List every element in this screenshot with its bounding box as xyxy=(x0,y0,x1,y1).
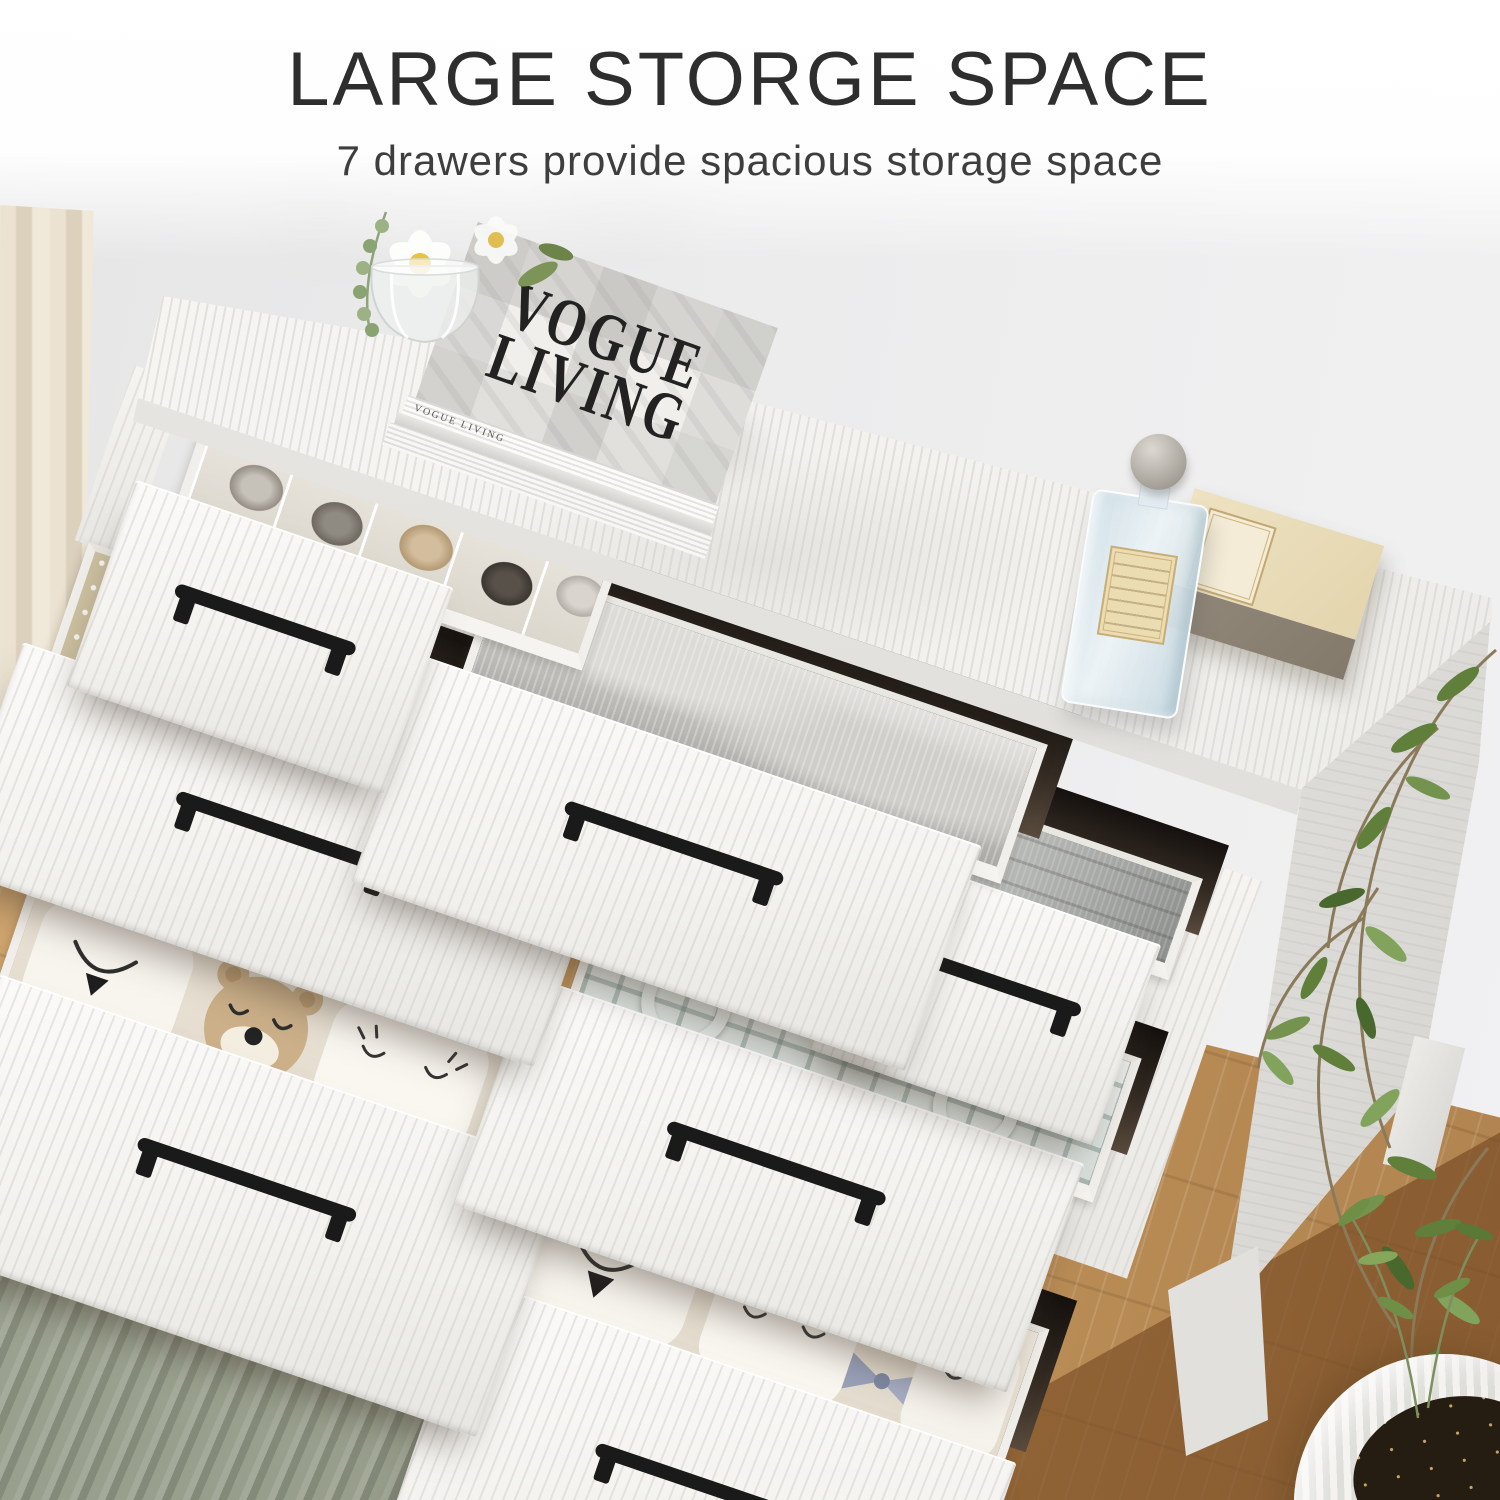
drawer-handle xyxy=(136,1136,358,1223)
perfume-ball-cap xyxy=(1126,430,1190,494)
drawer-handle xyxy=(563,800,785,887)
product-photo-dresser: LARGE STORGE SPACE 7 drawers provide spa… xyxy=(0,0,1500,1500)
drawer-handle xyxy=(173,583,357,657)
glass-vase-bowl xyxy=(371,266,478,342)
drawer-handle xyxy=(594,1442,816,1500)
page-title: LARGE STORGE SPACE xyxy=(0,0,1500,123)
white-daisy xyxy=(469,216,523,264)
header-band: LARGE STORGE SPACE 7 drawers provide spa… xyxy=(0,0,1500,260)
drawer-handle xyxy=(665,1120,887,1207)
pot-plant-sprigs xyxy=(1268,1128,1500,1428)
page-subtitle: 7 drawers provide spacious storage space xyxy=(0,123,1500,185)
flower-vase xyxy=(300,200,600,350)
